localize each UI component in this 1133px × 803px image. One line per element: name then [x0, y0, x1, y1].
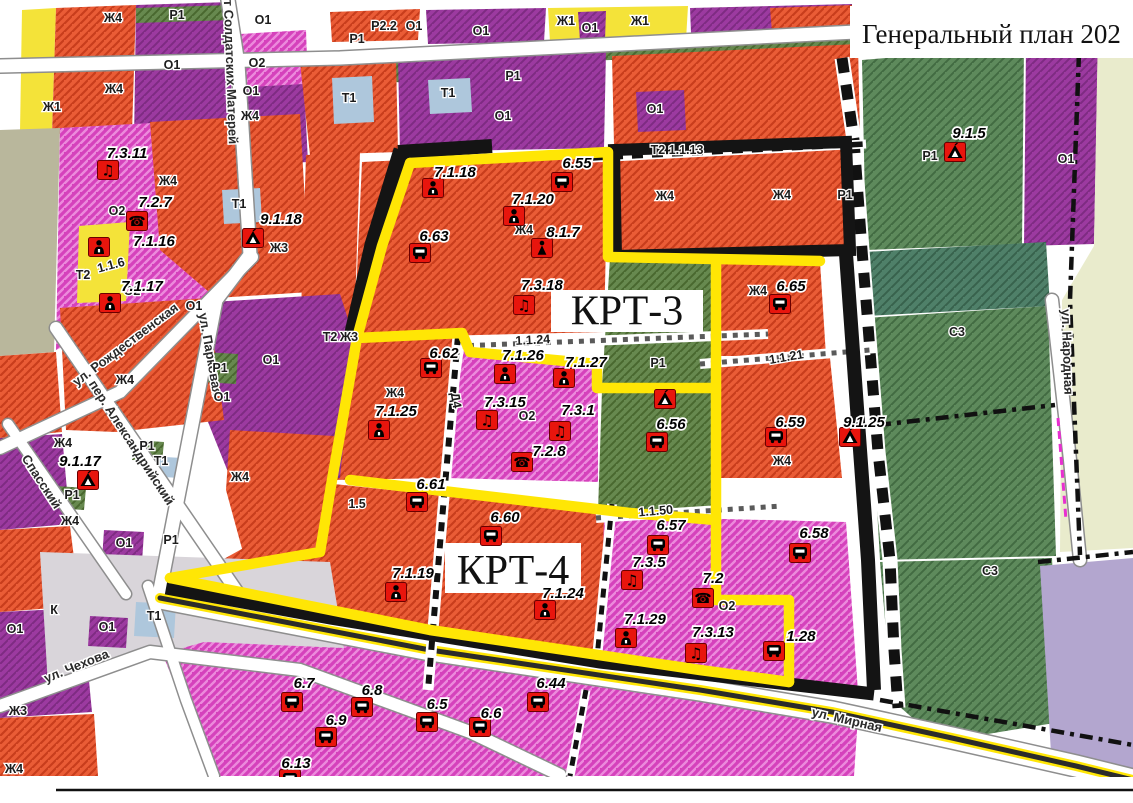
zone-label: Р1: [650, 356, 665, 370]
general-plan-map: пр-т Солдатских Матерейул. Рождественска…: [0, 0, 1133, 803]
zone-label: О2: [719, 599, 736, 613]
zone-label: О1: [263, 353, 280, 367]
zone-label: О1: [7, 622, 24, 636]
zone-label: Ж4: [60, 514, 79, 528]
zone-label: Т2: [323, 330, 338, 344]
zone-label: С3: [949, 325, 965, 339]
zone-label: О1: [647, 102, 664, 116]
zone-label: О1: [116, 536, 133, 550]
marker-label: 6.63: [419, 228, 449, 245]
svg-text:☎: ☎: [513, 455, 530, 471]
zone-label: Т2 1.1.13: [651, 143, 704, 157]
svg-text:♫: ♫: [101, 162, 114, 180]
marker-label: 6.65: [776, 278, 806, 295]
marker-label: 6.9: [326, 712, 348, 729]
zone-label: О2: [109, 204, 126, 218]
marker-label: 9.1.17: [59, 453, 101, 470]
marker-label: 7.1.16: [133, 233, 175, 250]
marker-label: 7.3.5: [632, 554, 666, 571]
zone-label: Р1: [922, 149, 937, 163]
zone-label: Ж1: [556, 14, 575, 28]
marker-label: 6.7: [294, 675, 316, 692]
zone-label: О1: [582, 21, 599, 35]
marker-label: 6.13: [281, 755, 311, 772]
marker-label: 7.3.11: [107, 145, 148, 162]
zone-label: Р1: [212, 361, 227, 375]
marker-label: 6.61: [416, 476, 445, 493]
marker-label: 7.2.8: [532, 443, 566, 460]
marker-label: 6.58: [799, 525, 829, 542]
svg-text:☎: ☎: [128, 214, 145, 230]
zone-label: Ж1: [42, 100, 61, 114]
marker-label: 9.1.5: [952, 125, 986, 142]
marker-label: 6.8: [362, 682, 384, 699]
zone-label: Ж3: [8, 704, 27, 718]
marker-label: 7.2: [703, 570, 725, 587]
zone-label: Р1: [64, 488, 79, 502]
krt-area-label: КРТ-3: [551, 288, 703, 334]
zone-label: Ж3: [269, 241, 288, 255]
zone-label: Р1: [163, 533, 178, 547]
zone-label: О1: [99, 620, 116, 634]
bottom-strip: [0, 777, 1133, 803]
zone-label: О1: [186, 299, 203, 313]
zone-label: Р1: [837, 188, 852, 202]
marker-label: 7.1.19: [392, 565, 434, 582]
svg-text:КРТ-3: КРТ-3: [571, 288, 684, 334]
marker-music-icon: ♫: [553, 423, 566, 441]
marker-music-icon: ♫: [101, 162, 114, 180]
marker-phone-icon: ☎: [128, 214, 145, 230]
marker-label: 7.3.13: [692, 624, 734, 641]
marker-label: 6.62: [429, 345, 459, 362]
zone-label: Ж4: [748, 284, 767, 298]
marker-label: 7.3.15: [484, 394, 526, 411]
zone-label: Ж4: [104, 82, 123, 96]
marker-label: 7.1.26: [502, 347, 544, 364]
zone-label: Ж4: [4, 762, 23, 776]
marker-label: 6.5: [427, 696, 449, 713]
zone-label: Р1: [505, 69, 520, 83]
marker-label: 8.1.7: [546, 224, 580, 241]
zone-label: О2: [249, 56, 266, 70]
zone-label: О1: [164, 58, 181, 72]
marker-label: 6.44: [536, 675, 566, 692]
marker-label: 7.1.24: [542, 585, 584, 602]
zone-label: Т2: [76, 268, 91, 282]
marker-music-icon: ♫: [517, 297, 530, 315]
marker-music-icon: ♫: [480, 412, 493, 430]
marker-label: 6.6: [481, 705, 503, 722]
zone-label: Ж4: [158, 174, 177, 188]
marker-label: 6.55: [562, 155, 592, 172]
zone-label: 1.5: [348, 497, 365, 511]
zone-label: Ж4: [772, 454, 791, 468]
zone-label: Ж4: [655, 189, 674, 203]
marker-label: 7.2.7: [138, 194, 172, 211]
zone-label: О1: [243, 84, 260, 98]
marker-music-icon: ♫: [689, 645, 702, 663]
zone-label: К: [50, 603, 58, 617]
zone-label: Т1: [342, 91, 357, 105]
zone-label: Р1: [349, 32, 364, 46]
zone-label: Т1: [441, 86, 456, 100]
zone-label: О2: [519, 409, 536, 423]
zone-label: Т1: [154, 454, 169, 468]
zone-label: Ж4: [385, 386, 404, 400]
svg-text:☎: ☎: [694, 591, 711, 607]
zone-label: Ж4: [230, 470, 249, 484]
marker-label: 7.1.17: [121, 278, 163, 295]
marker-music-icon: ♫: [625, 572, 638, 590]
svg-text:♫: ♫: [689, 645, 702, 663]
zone-label: 1.1.24: [515, 332, 550, 348]
marker-label: 7.1.27: [565, 354, 607, 371]
zone-label: Ж4: [103, 11, 122, 25]
zone-label: О1: [495, 109, 512, 123]
marker-label: 6.60: [490, 509, 520, 526]
svg-text:♫: ♫: [625, 572, 638, 590]
zone-label: Ж4: [115, 373, 134, 387]
zone-label: Д4: [448, 391, 465, 409]
marker-label: 7.1.29: [624, 611, 666, 628]
marker-label: 6.59: [775, 414, 805, 431]
title-box: Генеральный план 202: [850, 6, 1133, 58]
zone-label: Р1: [139, 439, 154, 453]
svg-text:♫: ♫: [480, 412, 493, 430]
marker-phone-icon: ☎: [694, 591, 711, 607]
marker-label: 7.1.20: [512, 191, 554, 208]
zone-label: О1: [1058, 152, 1075, 166]
marker-label: 9.1.25: [843, 414, 885, 431]
marker-label: 6.57: [656, 517, 686, 534]
marker-label: 7.1.25: [375, 403, 417, 420]
zone-label: Р1: [169, 8, 184, 22]
marker-label: 6.56: [656, 416, 686, 433]
marker-label: 9.1.18: [260, 211, 302, 228]
zone-label: О1: [406, 19, 423, 33]
zone-label: С3: [982, 564, 998, 578]
zone-label: Ж1: [630, 14, 649, 28]
marker-label: 7.1.18: [434, 164, 476, 181]
zone-label: Ж4: [240, 109, 259, 123]
map-canvas: пр-т Солдатских Матерейул. Рождественска…: [0, 0, 1133, 803]
zone-label: Ж3: [339, 330, 358, 344]
map-title: Генеральный план 202: [862, 19, 1121, 49]
svg-text:♫: ♫: [517, 297, 530, 315]
zone-label: О1: [473, 24, 490, 38]
zone-label: О1: [255, 13, 272, 27]
marker-phone-icon: ☎: [513, 455, 530, 471]
marker-label: 7.3.18: [521, 277, 563, 294]
map-marker-unlabeled: [655, 390, 676, 409]
zone-label: Р2.2: [371, 19, 397, 33]
marker-label: 1.28: [786, 628, 816, 645]
street-label: ул. Народная: [1059, 309, 1077, 395]
zone-label: Т1: [147, 609, 162, 623]
zone-label: Ж4: [772, 188, 791, 202]
zone-label: Ж4: [53, 436, 72, 450]
zone-label: О1: [214, 390, 231, 404]
zone-label: Т1: [232, 197, 247, 211]
svg-text:♫: ♫: [553, 423, 566, 441]
marker-label: 7.3.1: [561, 402, 594, 419]
